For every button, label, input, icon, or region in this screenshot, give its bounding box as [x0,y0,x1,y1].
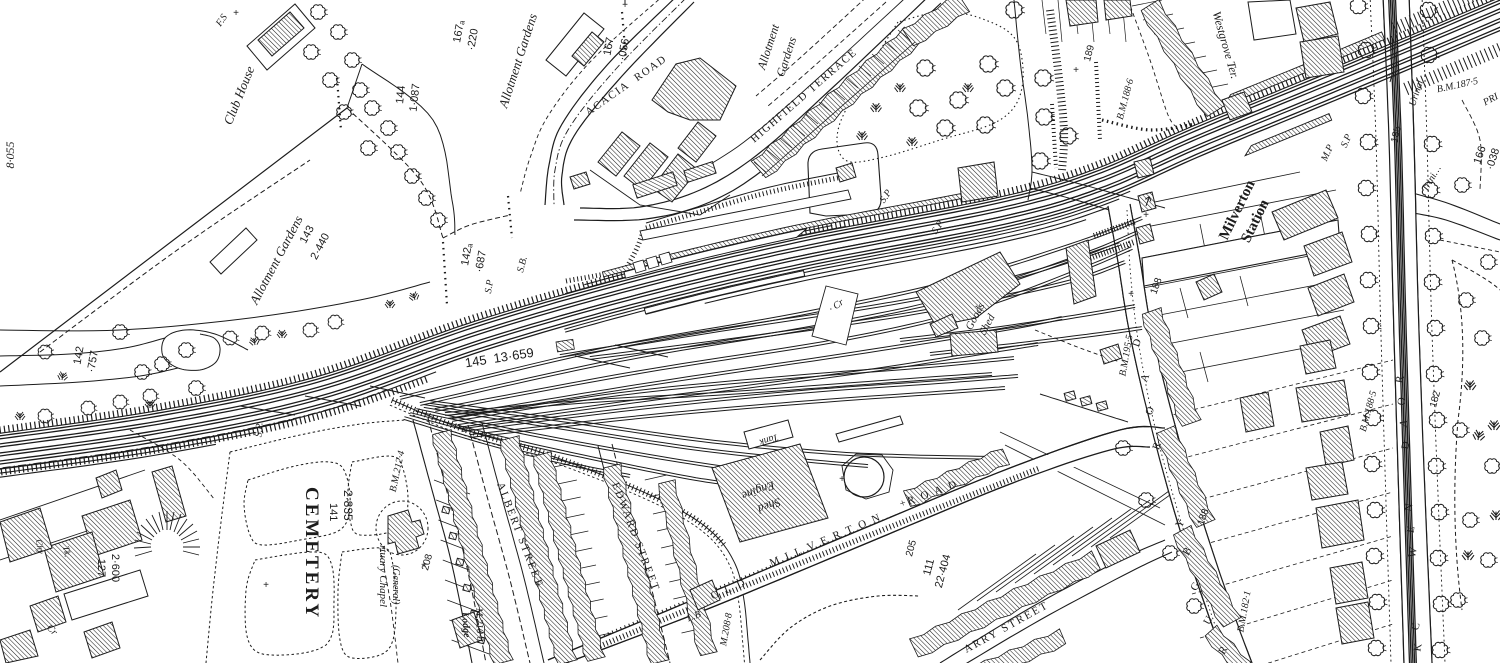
svg-text:CEMETERY: CEMETERY [301,487,322,620]
svg-text:+: + [1073,65,1079,76]
svg-text:127: 127 [95,559,107,577]
svg-text:M.210·0: M.210·0 [473,607,485,642]
svg-text:+: + [839,474,845,485]
svg-text:Lodge: Lodge [459,611,472,639]
svg-text:+: + [1143,210,1149,221]
svg-text:141: 141 [327,503,339,521]
svg-text:(General): (General) [390,565,401,605]
svg-text:144: 144 [394,85,408,105]
svg-text:+: + [233,8,239,19]
svg-text:2·835: 2·835 [341,490,355,521]
svg-text:+: + [263,580,269,591]
svg-text:8·055: 8·055 [3,142,17,169]
svg-text:+: + [1128,289,1134,300]
svg-text:S.P.: S.P. [253,422,265,438]
svg-text:+: + [622,0,628,11]
svg-text:S.P: S.P [483,279,496,294]
svg-text:2·600: 2·600 [109,554,121,582]
svg-text:Tk.: Tk. [61,545,73,558]
svg-text:rtuary Chapel: rtuary Chapel [377,545,389,607]
